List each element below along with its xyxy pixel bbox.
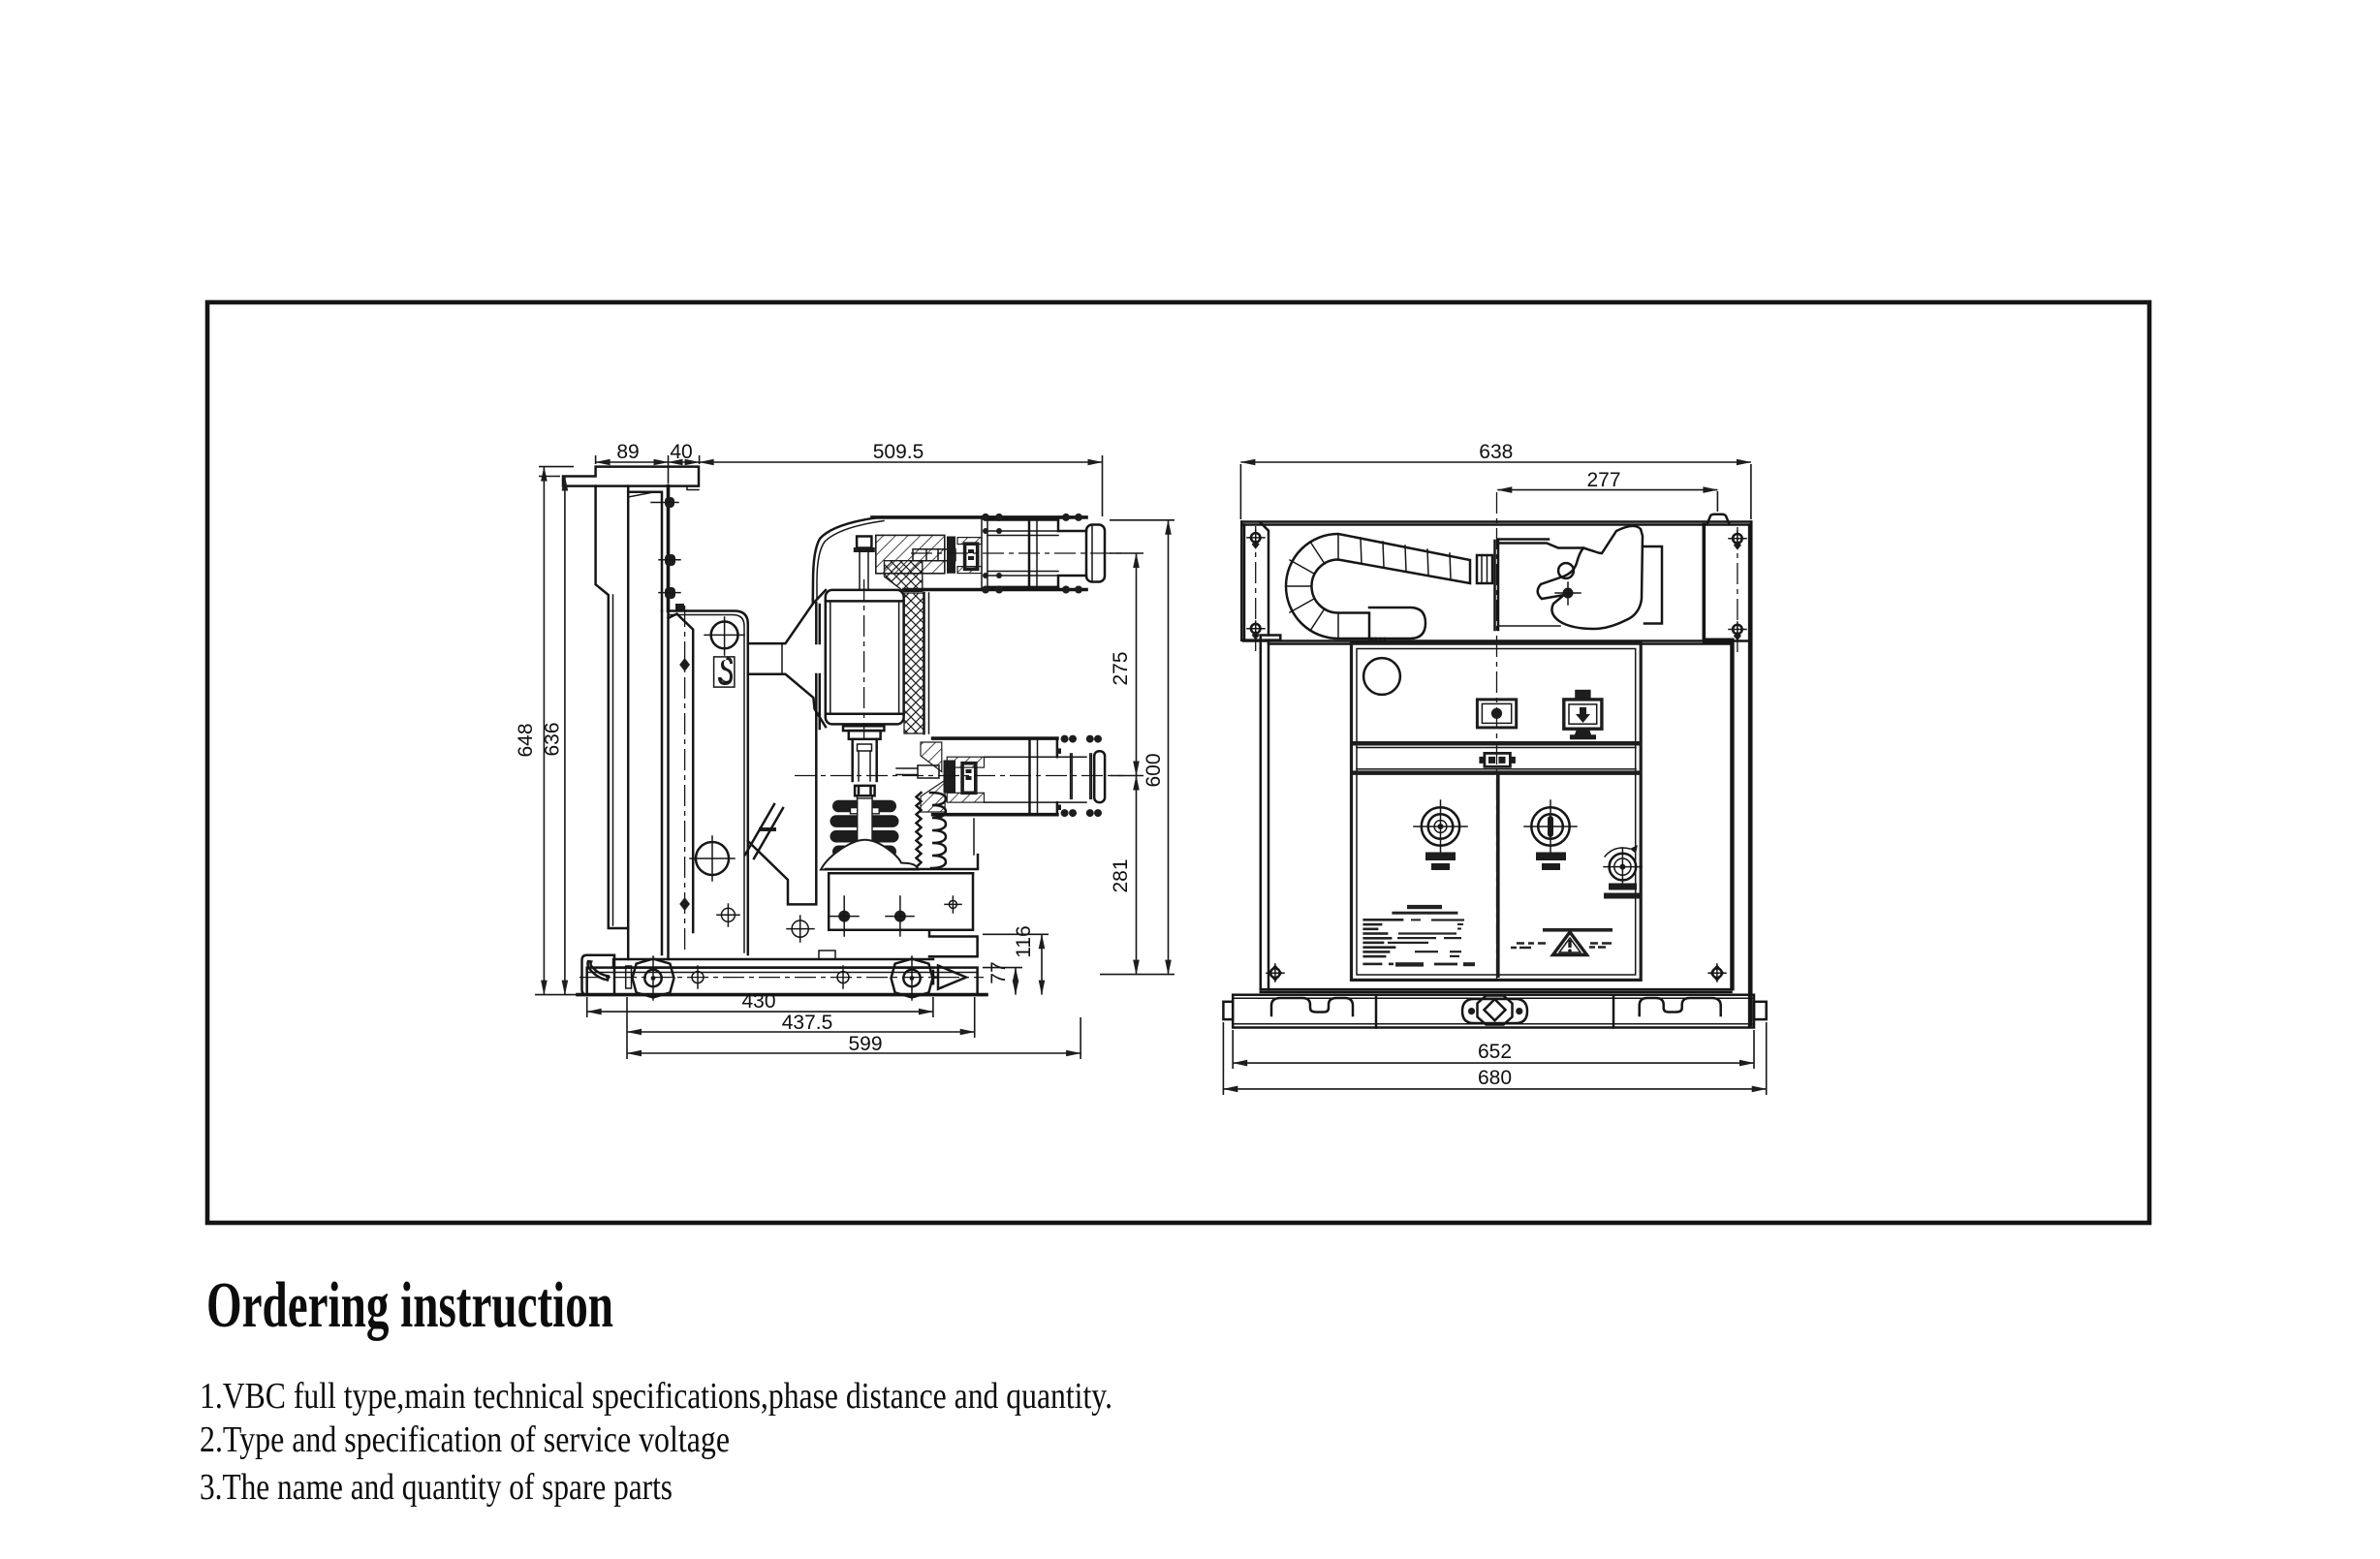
svg-text:3.The name and quantity of spa: 3.The name and quantity of spare parts: [200, 1467, 673, 1508]
svg-text:40: 40: [670, 441, 692, 463]
svg-text:89: 89: [616, 441, 639, 463]
svg-text:638: 638: [1479, 441, 1513, 463]
svg-text:Ordering instruction: Ordering instruction: [206, 1269, 613, 1341]
svg-text:277: 277: [1586, 469, 1620, 491]
svg-text:636: 636: [542, 722, 564, 756]
svg-text:1.VBC full type,main technical: 1.VBC full type,main technical specifica…: [200, 1376, 1112, 1417]
svg-text:2.Type and specification of se: 2.Type and specification of service volt…: [200, 1419, 730, 1460]
svg-text:648: 648: [515, 723, 537, 757]
svg-text:281: 281: [1110, 858, 1132, 892]
svg-text:116: 116: [1013, 925, 1035, 957]
svg-text:509.5: 509.5: [873, 441, 924, 463]
svg-text:275: 275: [1110, 651, 1132, 685]
svg-text:600: 600: [1143, 753, 1165, 787]
svg-text:437.5: 437.5: [782, 1012, 833, 1034]
svg-text:652: 652: [1478, 1041, 1512, 1063]
svg-text:599: 599: [848, 1033, 882, 1055]
svg-text:430: 430: [741, 990, 775, 1013]
svg-text:680: 680: [1478, 1067, 1512, 1089]
svg-text:77: 77: [987, 961, 1010, 983]
